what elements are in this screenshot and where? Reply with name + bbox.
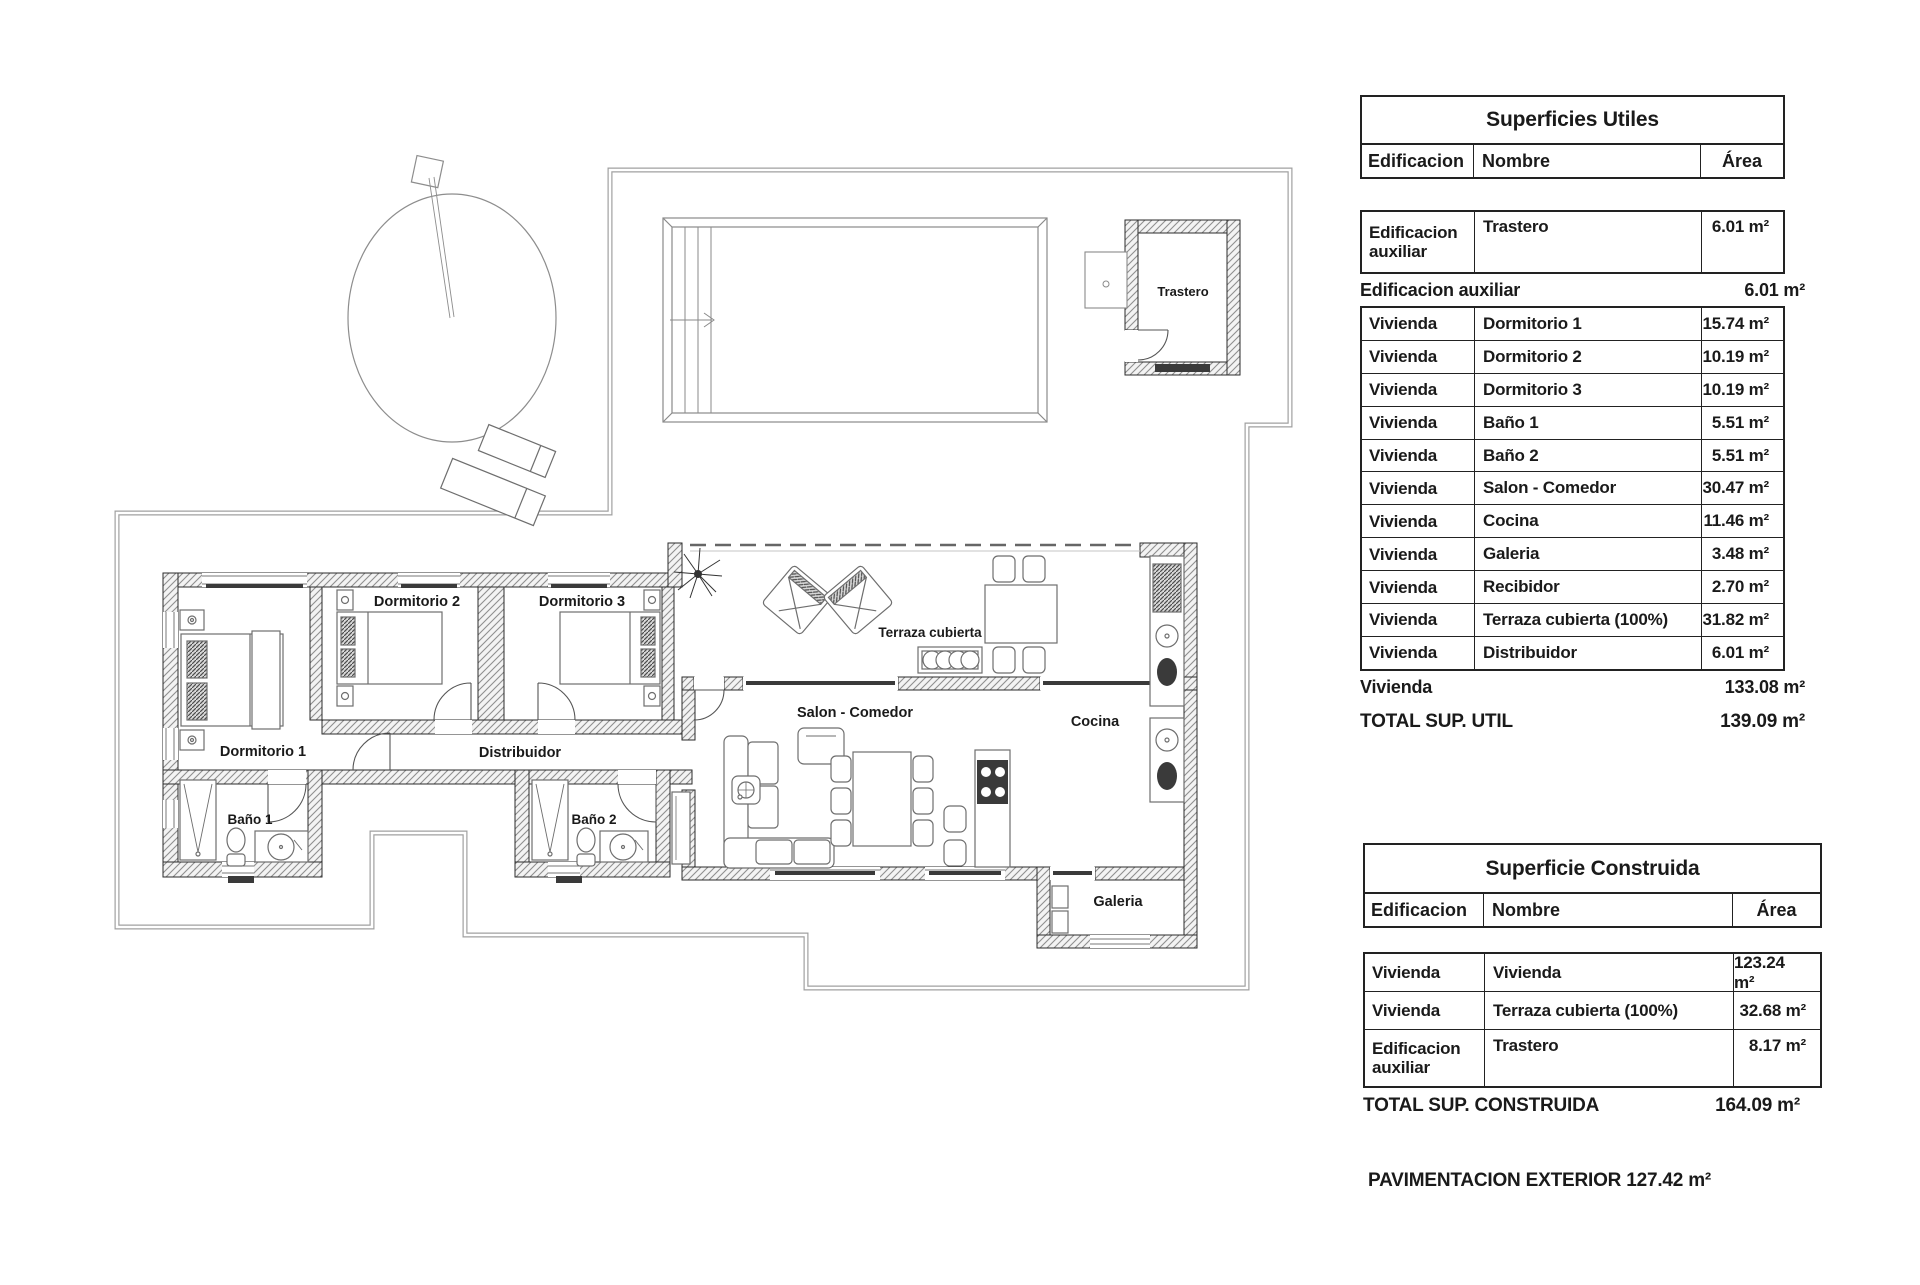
utiles-header-area: Área	[1701, 145, 1783, 177]
table-row: Edificacion auxiliar Trastero 6.01 m²	[1362, 212, 1783, 272]
construida-total: TOTAL SUP. CONSTRUIDA 164.09 m²	[1363, 1088, 1800, 1124]
cell-edificacion: Vivienda	[1362, 571, 1475, 603]
cell-area: 8.17 m²	[1734, 1030, 1820, 1086]
room-label-cocina: Cocina	[1071, 714, 1120, 730]
table-row: Vivienda Recibidor 2.70 m²	[1362, 570, 1783, 603]
utiles-header-nombre: Nombre	[1474, 145, 1701, 177]
construida-header-area: Área	[1733, 894, 1820, 926]
cell-nombre: Terraza cubierta (100%)	[1485, 992, 1734, 1029]
utiles-total: TOTAL SUP. UTIL 139.09 m²	[1360, 705, 1805, 739]
table-superficie-construida: Superficie Construida Edificacion Nombre…	[1363, 843, 1822, 1124]
room-label-banyo1: Baño 1	[227, 812, 273, 827]
construida-header-nombre: Nombre	[1484, 894, 1733, 926]
table-row: Vivienda Galeria 3.48 m²	[1362, 537, 1783, 570]
cell-area: 3.48 m²	[1702, 538, 1783, 570]
table-row: Edificacion auxiliar Trastero 8.17 m²	[1365, 1029, 1820, 1086]
cell-edificacion: Vivienda	[1362, 472, 1475, 504]
cell-edificacion: Vivienda	[1362, 308, 1475, 340]
floor-plan-area: Dormitorio 1 Dormitorio 2 Dormitorio 3 D…	[0, 0, 1345, 1280]
pool	[663, 218, 1047, 422]
bed-dorm1	[180, 610, 283, 750]
cell-edificacion: Edificacion auxiliar	[1365, 1030, 1485, 1086]
cell-nombre: Recibidor	[1475, 571, 1702, 603]
room-label-distribuidor: Distribuidor	[479, 745, 562, 761]
utiles-header-edificacion: Edificacion	[1362, 145, 1474, 177]
room-label-galeria: Galeria	[1093, 894, 1143, 910]
cell-area: 6.01 m²	[1702, 212, 1783, 272]
kitchen-island	[944, 750, 1010, 867]
recibidor-cabinet	[672, 792, 690, 864]
construida-header-edificacion: Edificacion	[1365, 894, 1484, 926]
cell-nombre: Cocina	[1475, 505, 1702, 537]
cell-area: 32.68 m²	[1734, 992, 1820, 1029]
cell-nombre: Dormitorio 3	[1475, 374, 1702, 406]
cell-area: 2.70 m²	[1702, 571, 1783, 603]
cell-nombre: Salon - Comedor	[1475, 472, 1702, 504]
subtotal-value: 6.01 m²	[1744, 280, 1805, 301]
cell-edificacion: Vivienda	[1362, 374, 1475, 406]
kitchen-counter-sink	[1150, 718, 1184, 802]
cell-nombre: Vivienda	[1485, 954, 1734, 991]
tree	[348, 156, 556, 442]
floor-plan: Dormitorio 1 Dormitorio 2 Dormitorio 3 D…	[0, 0, 1345, 1280]
cell-nombre: Baño 1	[1475, 407, 1702, 439]
terraza-dining-set	[985, 556, 1057, 673]
kitchen-counter-north	[1150, 556, 1184, 706]
galeria-door-track	[1053, 871, 1092, 875]
room-label-terraza: Terraza cubierta	[878, 625, 982, 640]
cell-edificacion: Edificacion auxiliar	[1362, 212, 1475, 272]
room-label-banyo2: Baño 2	[571, 812, 616, 827]
cell-edificacion: Vivienda	[1362, 538, 1475, 570]
dorm3-door-icon	[538, 683, 575, 720]
cell-nombre: Dormitorio 2	[1475, 341, 1702, 373]
utiles-aux-box: Edificacion auxiliar Trastero 6.01 m²	[1360, 210, 1785, 274]
total-label: TOTAL SUP. UTIL	[1360, 711, 1513, 733]
banyo1-door-icon	[268, 784, 306, 822]
cell-nombre: Trastero	[1485, 1030, 1734, 1086]
utiles-rows-box: Vivienda Dormitorio 1 15.74 m² Vivienda …	[1360, 306, 1785, 671]
terraza-roof-edge	[690, 545, 1140, 551]
subtotal-label: Vivienda	[1360, 677, 1432, 698]
banyo2-door-icon	[618, 784, 656, 822]
room-label-trastero: Trastero	[1157, 284, 1208, 299]
room-label-dormitorio2: Dormitorio 2	[374, 594, 460, 610]
firepit	[918, 647, 982, 673]
cell-nombre: Terraza cubierta (100%)	[1475, 604, 1702, 636]
table-row: Vivienda Dormitorio 1 15.74 m²	[1362, 308, 1783, 340]
cell-edificacion: Vivienda	[1362, 341, 1475, 373]
table-superficies-utiles: Superficies Utiles Edificacion Nombre Ár…	[1360, 95, 1785, 739]
total-label: TOTAL SUP. CONSTRUIDA	[1363, 1095, 1599, 1117]
utiles-aux-subtotal: Edificacion auxiliar 6.01 m²	[1360, 274, 1805, 306]
terraza-chairs	[762, 565, 893, 635]
table-row: Vivienda Dormitorio 3 10.19 m²	[1362, 373, 1783, 406]
table-row: Vivienda Cocina 11.46 m²	[1362, 504, 1783, 537]
table-row: Vivienda Terraza cubierta (100%) 31.82 m…	[1362, 603, 1783, 636]
pavimentacion-note: PAVIMENTACION EXTERIOR 127.42 m²	[1368, 1170, 1711, 1192]
cell-area: 30.47 m²	[1702, 472, 1783, 504]
trastero-annex	[1085, 252, 1127, 308]
construida-rows-box: Vivienda Vivienda 123.24 m² Vivienda Ter…	[1363, 952, 1822, 1088]
room-label-salon: Salon - Comedor	[797, 705, 913, 721]
cell-edificacion: Vivienda	[1362, 407, 1475, 439]
room-label-dormitorio1: Dormitorio 1	[220, 744, 306, 760]
cell-area: 5.51 m²	[1702, 407, 1783, 439]
cell-area: 15.74 m²	[1702, 308, 1783, 340]
cell-edificacion: Vivienda	[1362, 505, 1475, 537]
subtotal-value: 133.08 m²	[1725, 677, 1805, 698]
utiles-header: Edificacion Nombre Área	[1360, 145, 1785, 179]
cell-area: 6.01 m²	[1702, 637, 1783, 669]
cell-nombre: Trastero	[1475, 212, 1702, 272]
room-label-dormitorio3: Dormitorio 3	[539, 594, 625, 610]
cell-nombre: Distribuidor	[1475, 637, 1702, 669]
subtotal-label: Edificacion auxiliar	[1360, 280, 1520, 301]
cell-nombre: Dormitorio 1	[1475, 308, 1702, 340]
trastero-door-gap	[1125, 330, 1138, 362]
cell-nombre: Baño 2	[1475, 440, 1702, 472]
table-row: Vivienda Baño 1 5.51 m²	[1362, 406, 1783, 439]
cell-area: 11.46 m²	[1702, 505, 1783, 537]
cell-edificacion: Vivienda	[1362, 440, 1475, 472]
cell-edificacion: Vivienda	[1362, 604, 1475, 636]
construida-title: Superficie Construida	[1363, 843, 1822, 894]
total-value: 139.09 m²	[1720, 711, 1805, 733]
table-row: Vivienda Salon - Comedor 30.47 m²	[1362, 471, 1783, 504]
stove-icon	[977, 760, 1008, 804]
table-row: Vivienda Distribuidor 6.01 m²	[1362, 636, 1783, 669]
cell-nombre: Galeria	[1475, 538, 1702, 570]
entrance-door-icon	[694, 690, 724, 720]
cell-edificacion: Vivienda	[1365, 954, 1485, 991]
table-row: Vivienda Terraza cubierta (100%) 32.68 m…	[1365, 991, 1820, 1029]
cell-area: 10.19 m²	[1702, 341, 1783, 373]
construida-header: Edificacion Nombre Área	[1363, 894, 1822, 928]
cell-edificacion: Vivienda	[1362, 637, 1475, 669]
cell-edificacion: Vivienda	[1365, 992, 1485, 1029]
utiles-title: Superficies Utiles	[1360, 95, 1785, 145]
cell-area: 5.51 m²	[1702, 440, 1783, 472]
sun-loungers	[441, 425, 556, 526]
cell-area: 123.24 m²	[1734, 954, 1820, 991]
dorm2-door-icon	[434, 683, 471, 720]
fan-icon	[732, 776, 760, 804]
utiles-vivienda-subtotal: Vivienda 133.08 m²	[1360, 671, 1805, 705]
dorm1-door-icon	[353, 733, 390, 770]
trastero-threshold	[1155, 364, 1210, 372]
table-row: Vivienda Baño 2 5.51 m²	[1362, 439, 1783, 472]
total-value: 164.09 m²	[1715, 1095, 1800, 1117]
cell-area: 31.82 m²	[1702, 604, 1783, 636]
table-row: Vivienda Vivienda 123.24 m²	[1365, 954, 1820, 991]
salon-dining-set	[831, 752, 933, 846]
galeria-appliances	[1052, 886, 1068, 933]
cell-area: 10.19 m²	[1702, 374, 1783, 406]
table-row: Vivienda Dormitorio 2 10.19 m²	[1362, 340, 1783, 373]
